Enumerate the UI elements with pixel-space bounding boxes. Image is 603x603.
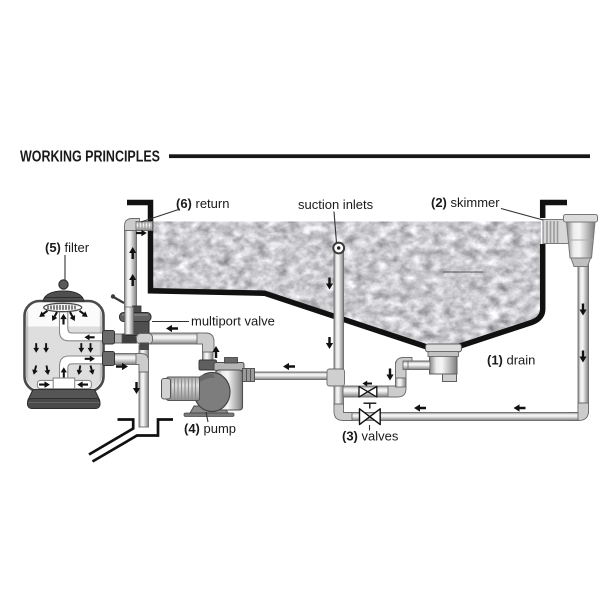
svg-text:(6) return: (6) return xyxy=(176,196,229,211)
svg-text:suction inlets: suction inlets xyxy=(298,197,374,212)
svg-text:(1) drain: (1) drain xyxy=(487,353,535,368)
svg-text:multiport valve: multiport valve xyxy=(191,314,275,329)
svg-text:WORKING PRINCIPLES: WORKING PRINCIPLES xyxy=(20,149,160,166)
svg-text:(5) filter: (5) filter xyxy=(45,240,90,255)
svg-text:(2) skimmer: (2) skimmer xyxy=(431,195,500,210)
svg-text:(3) valves: (3) valves xyxy=(342,429,399,444)
svg-text:(4) pump: (4) pump xyxy=(184,421,236,436)
